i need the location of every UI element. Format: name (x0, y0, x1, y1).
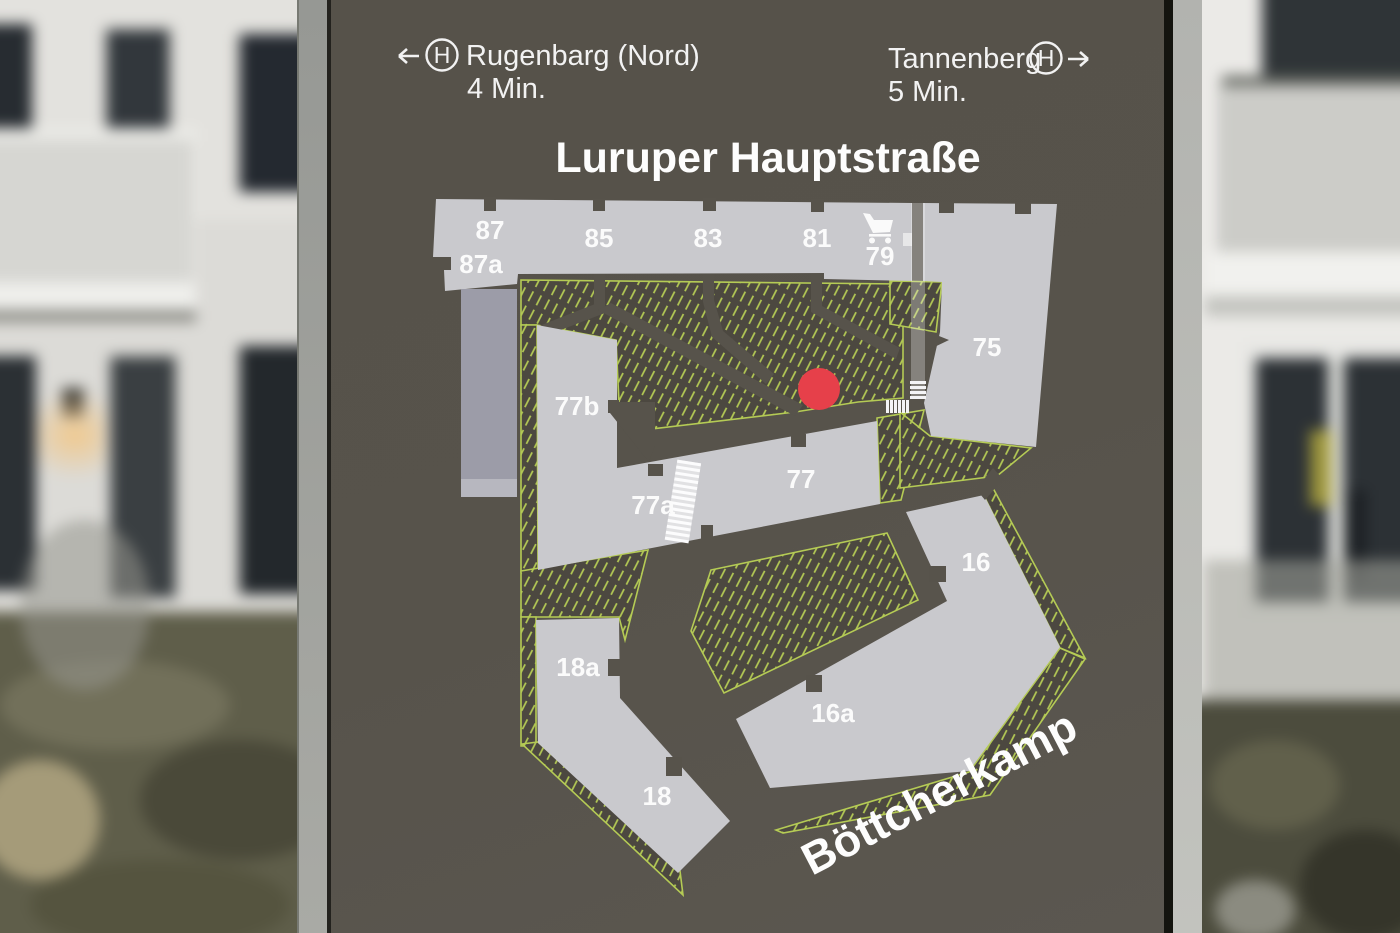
svg-text:77b: 77b (555, 391, 600, 421)
svg-text:18a: 18a (556, 652, 600, 682)
svg-text:79: 79 (866, 241, 895, 271)
svg-text:H: H (1038, 45, 1055, 71)
svg-text:75: 75 (973, 332, 1002, 362)
svg-text:H: H (434, 42, 451, 68)
svg-text:87a: 87a (459, 249, 503, 279)
svg-text:85: 85 (585, 223, 614, 253)
svg-text:81: 81 (803, 223, 832, 253)
svg-text:18: 18 (643, 781, 672, 811)
svg-text:77a: 77a (631, 490, 675, 520)
svg-text:4 Min.: 4 Min. (467, 73, 546, 105)
svg-text:16a: 16a (811, 698, 855, 728)
svg-text:Tannenberg: Tannenberg (888, 43, 1041, 75)
svg-text:87: 87 (476, 215, 505, 245)
svg-text:Luruper Hauptstraße: Luruper Hauptstraße (555, 134, 980, 182)
svg-text:5 Min.: 5 Min. (888, 76, 967, 108)
svg-text:77: 77 (787, 464, 816, 494)
svg-text:83: 83 (694, 223, 723, 253)
svg-text:Rugenbarg (Nord): Rugenbarg (Nord) (466, 40, 700, 72)
svg-text:16: 16 (962, 547, 991, 577)
